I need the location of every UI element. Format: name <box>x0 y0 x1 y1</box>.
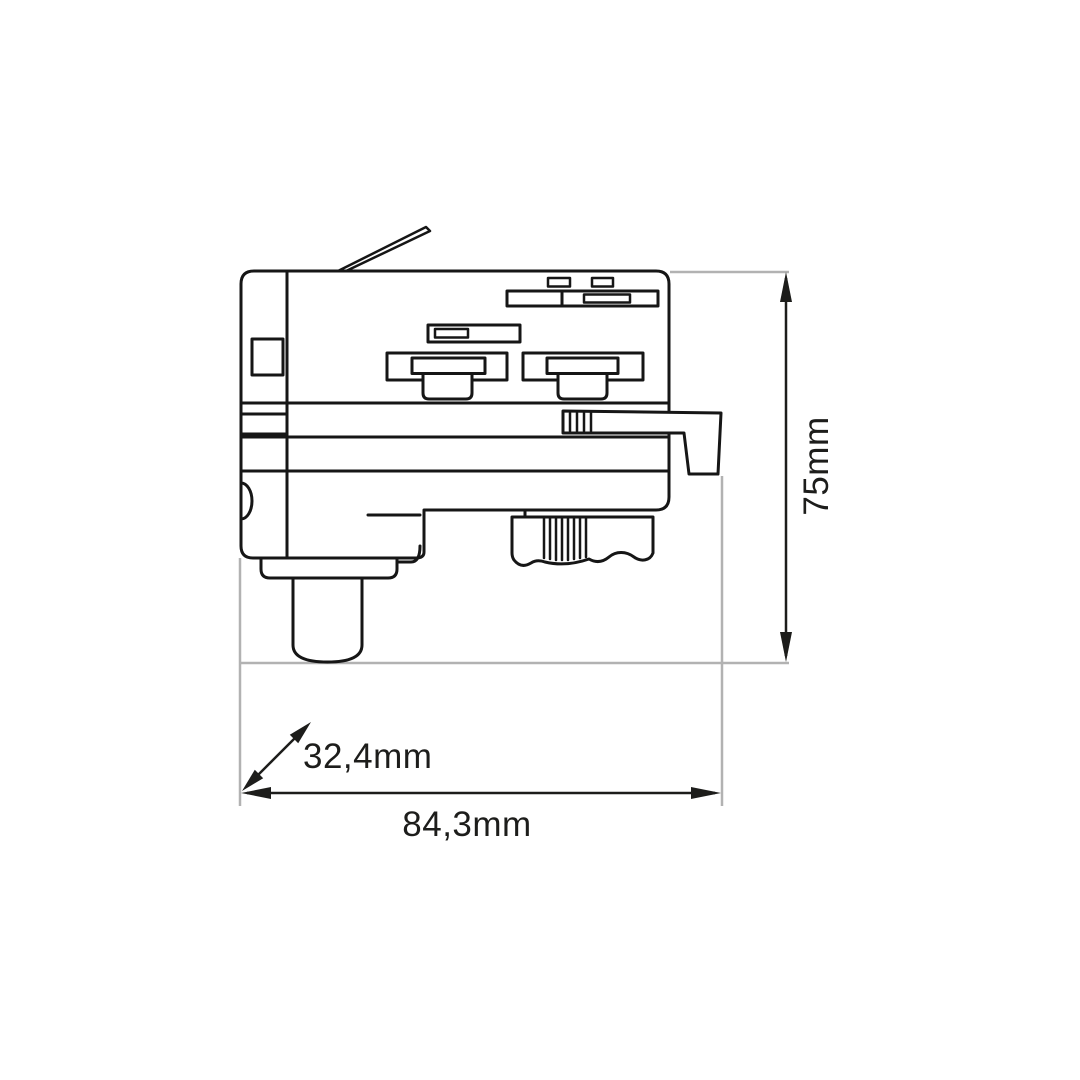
cable-gland-body <box>512 517 653 565</box>
arrowhead-down-icon <box>780 632 792 662</box>
contact-bar-outer <box>507 291 658 306</box>
contact-slot-small-2 <box>592 278 613 287</box>
contact-left-stem <box>423 372 472 399</box>
height-dimension-arrow <box>780 272 792 662</box>
technical-drawing: 75mm 84,3mm 32,4mm <box>0 0 1080 1080</box>
selector-slot-inner <box>435 329 468 338</box>
width-dimension-label: 84,3mm <box>402 805 531 844</box>
contact-bar-inner <box>584 295 630 303</box>
canvas: 75mm 84,3mm 32,4mm <box>0 0 1080 1080</box>
width-dimension-arrow <box>241 787 721 799</box>
release-lever <box>336 227 430 272</box>
contact-slot-small-1 <box>548 278 570 287</box>
depth-dimension-arrow <box>242 722 311 791</box>
contact-left-inner <box>412 358 485 374</box>
side-notch-window <box>252 339 283 375</box>
arrowhead-up-icon <box>780 272 792 302</box>
depth-dimension-label: 32,4mm <box>303 737 432 776</box>
arrowhead-right-icon <box>691 787 721 799</box>
contact-right-stem <box>558 372 607 399</box>
track-adapter-outline <box>241 227 721 662</box>
collar-flange <box>261 558 397 578</box>
contact-right-inner <box>547 358 618 374</box>
height-dimension-label: 75mm <box>797 416 836 515</box>
mounting-spigot <box>293 578 362 662</box>
